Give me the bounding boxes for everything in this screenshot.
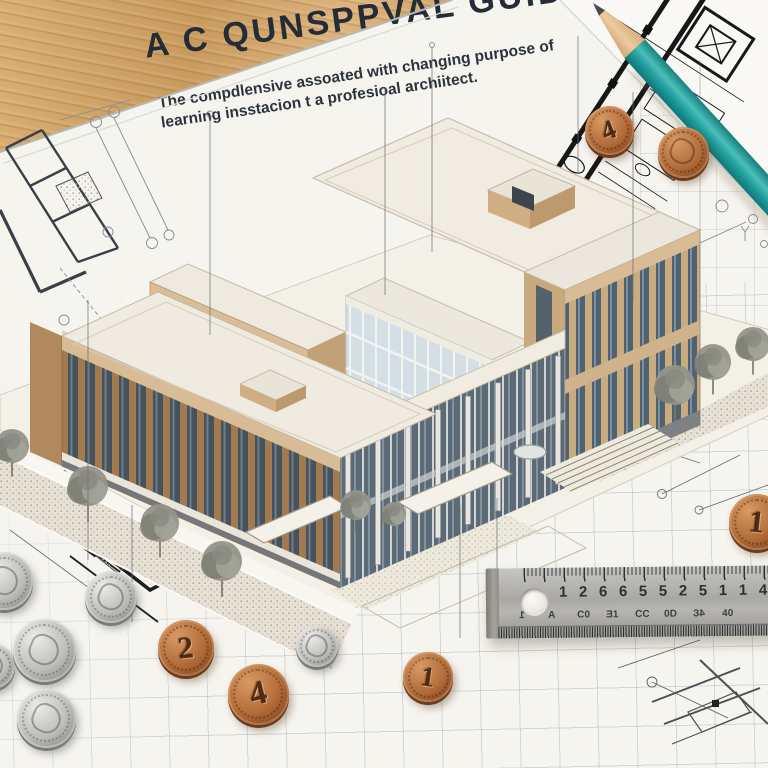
- ruler-small-number: 0D: [664, 609, 677, 620]
- steel-ruler: 12665525114 1A0ƆƎ1ƆƆ0D4Ɛ40: [486, 565, 768, 638]
- coin-numeral: 4: [245, 674, 270, 715]
- ruler-number: 1: [739, 582, 748, 599]
- copper-coin-4: 4: [228, 664, 289, 725]
- ruler-number: 4: [759, 582, 768, 599]
- silver-coin: [17, 689, 76, 748]
- ruler-small-number: 0Ɔ: [577, 609, 590, 620]
- ruler-small-number: ƆƆ: [635, 609, 650, 620]
- column: [376, 437, 381, 565]
- ruler-small-number: 1: [519, 610, 525, 621]
- ruler-number: 6: [619, 583, 628, 600]
- column: [496, 383, 501, 511]
- ruler-number: 2: [579, 584, 588, 601]
- column: [406, 423, 411, 551]
- ruler-number: 1: [719, 582, 728, 599]
- column: [436, 410, 441, 538]
- column: [466, 396, 471, 524]
- coin-numeral: 4: [597, 113, 621, 147]
- ruler-number: 2: [679, 582, 688, 599]
- floorplan-bottom-right: [618, 640, 768, 744]
- ruler-number: 1: [559, 584, 568, 601]
- column: [526, 369, 531, 497]
- illustration-scene: A C QUNSPPVAL GUIDE The compdlensive ass…: [0, 0, 768, 768]
- copper-coin-2: 2: [158, 620, 214, 676]
- ruler-number: 5: [639, 583, 648, 600]
- copper-coin: [658, 127, 709, 178]
- ruler-number: 5: [699, 582, 708, 599]
- ruler-small-number: Ǝ1: [606, 609, 618, 620]
- ruler-number: 6: [599, 583, 608, 600]
- coin-numeral: 1: [748, 504, 767, 540]
- copper-coin-1: 1: [403, 652, 453, 702]
- ruler-small-number: 40: [722, 608, 733, 619]
- copper-coin-4: 4: [585, 106, 634, 155]
- coin-numeral: 1: [419, 660, 437, 694]
- architectural-illustration: [0, 0, 768, 768]
- coin-numeral: 2: [177, 630, 196, 666]
- ruler-small-number: A: [548, 610, 555, 621]
- silver-coin: [85, 571, 137, 623]
- ruler-number: 5: [659, 583, 668, 600]
- ruler-ticks-major: [524, 565, 768, 582]
- silver-coin: [13, 619, 76, 682]
- silver-coin: [296, 625, 338, 667]
- ruler-small-number: 4Ɛ: [693, 608, 705, 619]
